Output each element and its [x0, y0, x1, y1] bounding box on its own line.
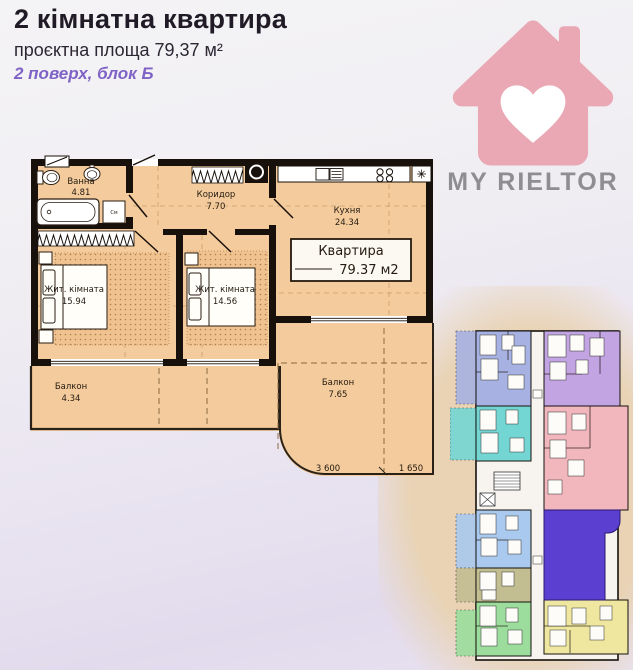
washer-icon: См: [103, 201, 125, 223]
apartment-stamp: Квартира 79.37 м2: [291, 239, 411, 281]
room-area-bedroom2: 14.56: [213, 297, 237, 307]
project-area-text: проєктна площа 79,37 м²: [14, 40, 287, 61]
stamp-area: 79.37 м2: [339, 263, 398, 278]
listing-header: 2 кімнатна квартира проєктна площа 79,37…: [14, 4, 287, 84]
kitchen-counter: [278, 166, 431, 182]
house-heart-icon: [452, 16, 614, 166]
dimension-3600: 3 600: [316, 464, 340, 474]
room-area-balcony-left: 4.34: [62, 394, 81, 404]
dimension-1650: 1 650: [399, 464, 423, 474]
room-label-kitchen: Кухня: [334, 206, 361, 216]
balcony-extensions: [450, 331, 476, 656]
boiler-icon: [245, 161, 268, 183]
stamp-title: Квартира: [318, 244, 383, 259]
room-label-bedroom2: Жит. кімната: [195, 285, 255, 295]
room-area-bedroom1: 15.94: [62, 297, 86, 307]
roof: [462, 29, 605, 97]
washer-label: См: [110, 210, 117, 216]
hood-icon: [412, 166, 431, 182]
room-area-bath: 4.81: [72, 188, 91, 198]
floor-plan: См: [29, 153, 439, 490]
brand-logo: MY RIELTOR: [438, 16, 628, 197]
room-label-corridor: Коридор: [197, 190, 236, 200]
wardrobe: [192, 167, 243, 183]
room-label-balcony-right: Балкон: [322, 378, 354, 388]
room-area-corridor: 7.70: [207, 202, 226, 212]
toilet-icon: [37, 171, 60, 185]
bathtub-icon: [37, 199, 99, 225]
stairs-icon: [494, 472, 520, 490]
room-label-bedroom1: Жит. кімната: [44, 285, 104, 295]
elevator-icon: [480, 493, 495, 506]
building-overview-plan: [450, 330, 633, 670]
room-area-kitchen: 24.34: [335, 218, 359, 228]
brand-name: MY RIELTOR: [438, 168, 628, 197]
wardrobe: [38, 231, 134, 246]
floor-block-text: 2 поверх, блок Б: [14, 64, 287, 84]
page-title: 2 кімнатна квартира: [14, 4, 287, 35]
listing-image: 2 кімнатна квартира проєктна площа 79,37…: [0, 0, 633, 670]
room-label-bath: Ванна: [67, 177, 94, 187]
room-label-balcony-left: Балкон: [55, 382, 87, 392]
room-area-balcony-right: 7.65: [329, 390, 348, 400]
